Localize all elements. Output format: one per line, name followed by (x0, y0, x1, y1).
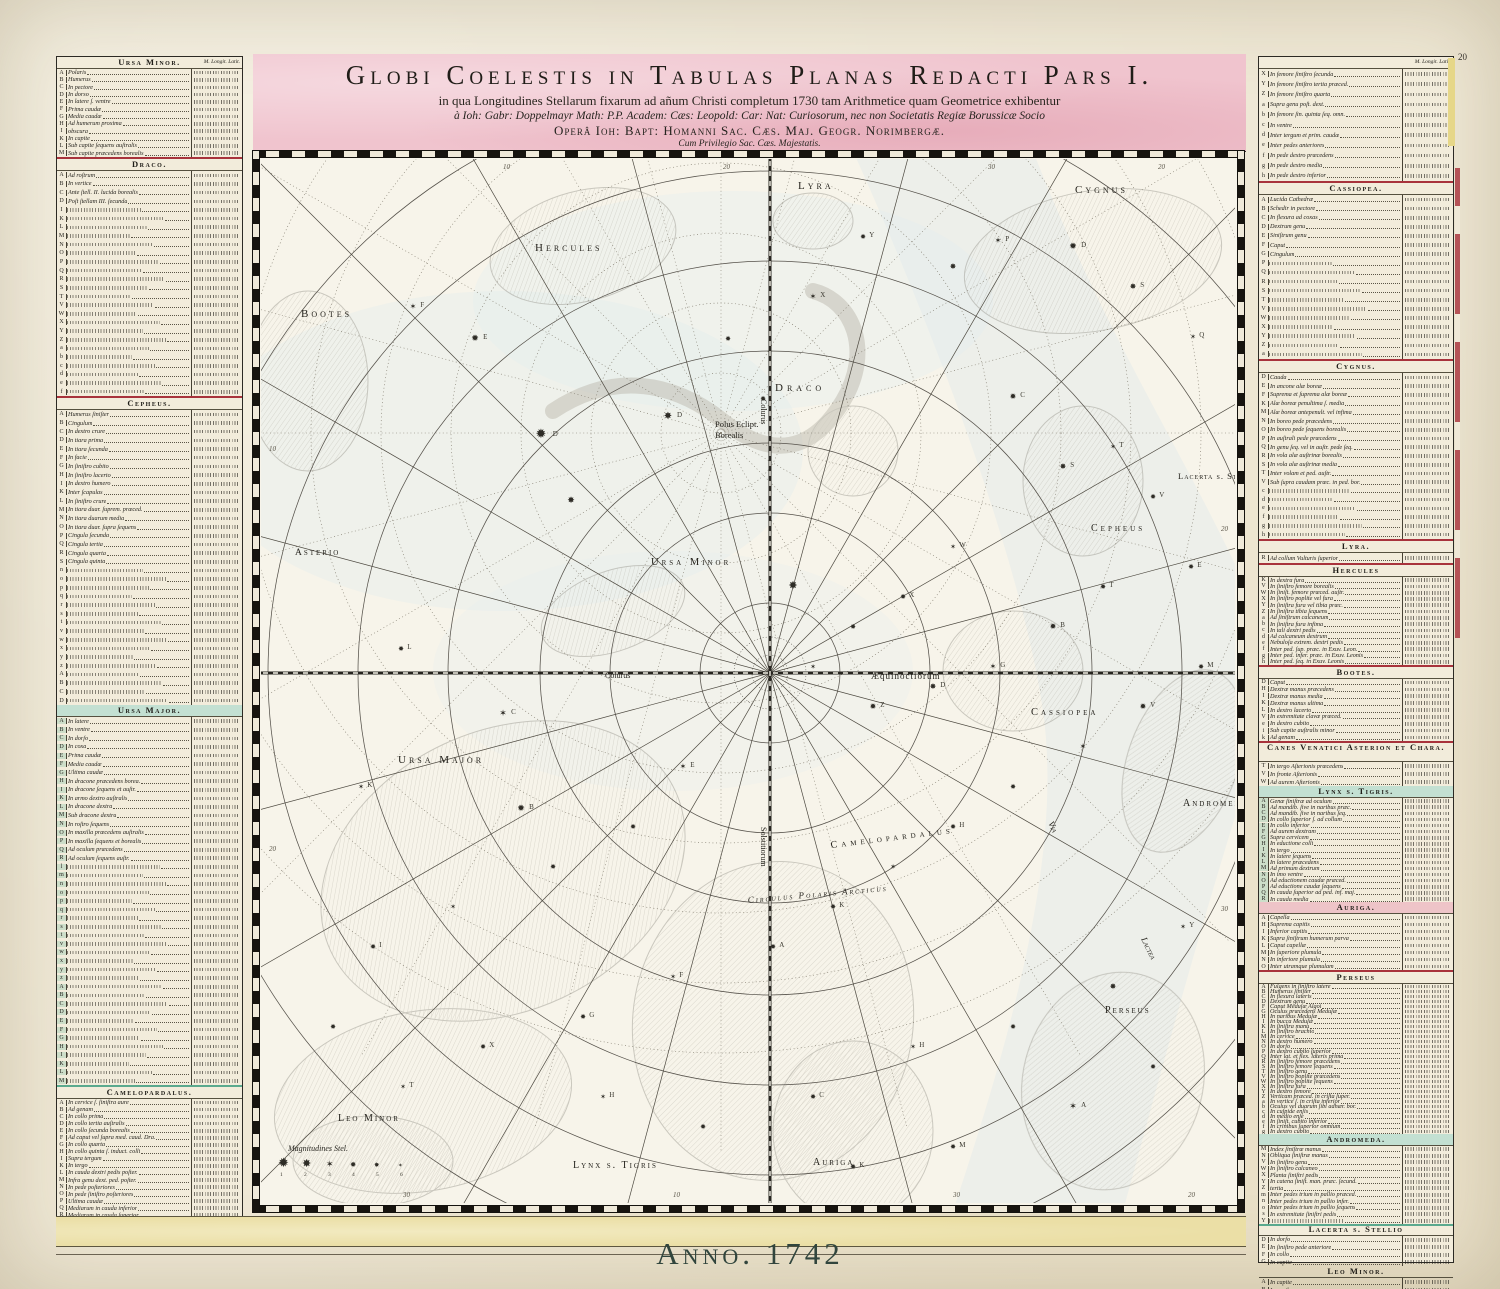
table-row: R (57, 275, 242, 284)
table-row: NIn pede poſteriores (57, 1184, 242, 1191)
table-row: z (57, 974, 242, 983)
table-row: MInfra genu dext. ped. poſter. (57, 1177, 242, 1184)
table-row: e (57, 379, 242, 388)
svg-text:10: 10 (673, 1191, 681, 1199)
table-section-cygnus: Cygnus.DCaudaEIn ancone alæ boreæFSuprem… (1259, 359, 1453, 539)
svg-text:30: 30 (987, 163, 996, 171)
table-section-bootes: Bootes.DCaputHDextræ manus præcedensIDex… (1259, 665, 1453, 741)
table-row: K (57, 1060, 242, 1069)
table-row: MSub dracone dextra (57, 811, 242, 820)
svg-text:✶: ✶ (1190, 333, 1196, 341)
table-row: HDextræ manus præcedens (1259, 686, 1453, 693)
page-title: Globi Coelestis in Tabulas Planas Redact… (253, 60, 1246, 91)
svg-text:✸: ✸ (950, 1143, 956, 1151)
svg-text:✸: ✸ (1130, 282, 1137, 291)
section-title: Draco. (57, 157, 242, 171)
svg-text:10: 10 (269, 445, 277, 453)
table-section-lyra: Lyra.RAd collum Vulturis ſuperior (1259, 539, 1453, 563)
table-row: L (57, 223, 242, 232)
svg-text:6: 6 (400, 1172, 403, 1178)
table-row: V (1259, 304, 1453, 313)
table-row: m (57, 871, 242, 880)
table-row: c (57, 361, 242, 370)
table-row: y (57, 965, 242, 974)
anno-date: Anno. 1742 (0, 1236, 1500, 1272)
table-row: DCauda (1259, 373, 1453, 382)
svg-text:5: 5 (376, 1172, 379, 1178)
svg-text:✸: ✸ (830, 903, 836, 911)
table-row: QMediarum in cauda inferior (57, 1205, 242, 1212)
star-table-left: Ursa Minor.M. Longit. Latit.APolarisBHum… (56, 56, 243, 1235)
section-title: Lynx ſ. Tigris. (1259, 786, 1453, 798)
svg-text:F: F (679, 971, 683, 979)
svg-text:30: 30 (402, 1191, 411, 1199)
svg-text:1: 1 (280, 1172, 283, 1178)
column-header-row: M. Longit. Latit. (1259, 57, 1453, 69)
svg-text:M: M (959, 1141, 966, 1149)
svg-text:20: 20 (1188, 1191, 1196, 1199)
table-row: BCingulum (57, 419, 242, 428)
table-row: OIn boreo pede ſequens borealis (1259, 425, 1453, 434)
table-row: GMedia caudæ (57, 113, 242, 120)
svg-text:✶: ✶ (358, 783, 364, 791)
table-row: s (57, 923, 242, 932)
svg-text:✹: ✹ (870, 702, 877, 711)
svg-text:L: L (407, 643, 411, 651)
section-title: Hercules (1259, 563, 1453, 577)
table-row: LIn cauda dextri pedis poſter. (57, 1169, 242, 1176)
table-row: T (1259, 295, 1453, 304)
table-row: DIn tiara prima (57, 436, 242, 445)
table-row: r (57, 914, 242, 923)
table-row: r (57, 601, 242, 610)
table-row: E (57, 1017, 242, 1026)
table-row: W (57, 310, 242, 319)
table-row: KSupra ſiniſtrum humerum parva (1259, 935, 1453, 942)
table-row: S (1259, 286, 1453, 295)
svg-text:✹: ✹ (536, 427, 547, 442)
table-row: CAnte ſtell. II. lucida borealis (57, 188, 242, 197)
table-row: IIn dracone ſequens et auſtr. (57, 786, 242, 795)
table-row: OIn maxilla præcedens auſtralis (57, 828, 242, 837)
svg-text:X: X (489, 1041, 494, 1049)
table-row: GIn ſiniſtro cubito (57, 462, 242, 471)
svg-text:✶: ✶ (890, 863, 896, 871)
table-row: QCingula tertia (57, 540, 242, 549)
svg-text:T: T (409, 1081, 414, 1089)
svg-text:✹: ✹ (1150, 493, 1156, 501)
svg-text:V: V (1150, 701, 1155, 709)
column-header: M. Longit. Latit. (1415, 57, 1451, 68)
svg-text:✶: ✶ (326, 1160, 334, 1170)
table-row: KIn capite (57, 135, 242, 142)
table-row: N (57, 240, 242, 249)
svg-text:✹: ✹ (1069, 242, 1077, 252)
table-row: FIn facie (57, 453, 242, 462)
svg-text:✶: ✶ (1080, 742, 1087, 751)
table-row: DIn collo tertia auſtralis (57, 1120, 242, 1127)
table-row: CIn collo prima (57, 1113, 242, 1120)
svg-text:✹: ✹ (630, 823, 636, 831)
table-row: h (1259, 530, 1453, 539)
table-row: o (57, 888, 242, 897)
table-row: t (57, 931, 242, 940)
table-row: HSuprema capitis (1259, 921, 1453, 928)
table-row: A (57, 982, 242, 991)
table-row: X (57, 318, 242, 327)
celestial-map: ✹D✸D✶F✹E✸✶C✹B✸L✶K✹✸✶X✹Y✸✶P✹D✸S✶Q✹C✸S✶T✹V… (252, 150, 1245, 1213)
svg-text:C: C (511, 708, 516, 716)
magnitude-legend-title: Magnitudines Stel. (287, 1144, 348, 1153)
table-row: hInter ped. ſeq. in Exuv. Leonis (1259, 659, 1453, 665)
table-section-cassiopea: Cassiopea.ALucida CathedræBSchedir in pe… (1259, 181, 1453, 359)
table-row: IDextræ manus media (1259, 693, 1453, 700)
edge-yellow-strip (1448, 58, 1455, 146)
table-row: AIn cervice ſ. ſiniſtra aure (57, 1099, 242, 1106)
svg-text:✸: ✸ (1198, 663, 1204, 671)
table-row: n (57, 880, 242, 889)
svg-text:✶: ✶ (950, 543, 956, 551)
svg-text:✸: ✸ (1188, 563, 1194, 571)
table-row: bIn femore ſin. quinta ſeq. omn. (1259, 110, 1453, 120)
table-row: HIn ſiniſtro lacerto (57, 471, 242, 480)
table-row: HIn collo quinta ſ. induct. colli (57, 1148, 242, 1155)
svg-text:D: D (553, 430, 558, 438)
table-row: x (57, 957, 242, 966)
table-row: NIn roſtro ſequens (57, 820, 242, 829)
svg-text:✶: ✶ (1110, 443, 1116, 451)
svg-text:20: 20 (1221, 525, 1229, 533)
svg-text:✸: ✸ (950, 262, 957, 271)
table-row: X (1259, 323, 1453, 332)
table-row: IIn dextro humero (57, 479, 242, 488)
map-label: Hercules (535, 242, 603, 254)
svg-text:✹: ✹ (471, 334, 479, 344)
svg-text:✸: ✸ (664, 411, 672, 422)
table-row: VIn fronte Aſterionis (1259, 770, 1453, 778)
table-row: n (57, 566, 242, 575)
column-header: M. Longit. Latit. (204, 57, 240, 68)
svg-text:✶: ✶ (910, 1043, 916, 1051)
svg-text:E: E (1197, 561, 1201, 569)
table-row: APolaris (57, 69, 242, 76)
table-row: t (57, 618, 242, 627)
svg-text:✸: ✸ (330, 1023, 336, 1031)
svg-text:E: E (483, 333, 487, 341)
map-label: Borealis (715, 430, 743, 440)
table-row: NIn inferiore plumula (1259, 956, 1453, 963)
svg-text:T: T (1119, 441, 1124, 449)
table-row: R (1259, 277, 1453, 286)
table-row: RAd oculum ſequens auſtr. (57, 854, 242, 863)
svg-text:✹: ✹ (370, 943, 376, 951)
map-label: Asterio (295, 548, 340, 558)
svg-text:D: D (677, 411, 682, 419)
table-row: FCaput (1259, 241, 1453, 250)
table-section-draco: Draco.AAd roſtrumBIn verticeCAnte ſtell.… (57, 157, 242, 396)
celestial-atlas-sheet: Globi Coelestis in Tabulas Planas Redact… (0, 0, 1500, 1289)
table-row: l (57, 863, 242, 872)
table-row: Q (1259, 268, 1453, 277)
table-row: PUltima caudæ (57, 1198, 242, 1205)
table-row: SIn vola alæ auſtrinæ media (1259, 460, 1453, 469)
svg-text:D: D (1081, 241, 1086, 249)
table-row: CIn pectore (57, 84, 242, 91)
svg-text:✸: ✸ (550, 863, 556, 871)
table-section-cepheus: Cepheus.AHumerus ſiniſterBCingulumCIn de… (57, 396, 242, 705)
table-row: B (57, 679, 242, 688)
table-row: f (57, 387, 242, 396)
table-row: e (1259, 504, 1453, 513)
table-row: GCingulum (1259, 250, 1453, 259)
svg-text:✶: ✶ (990, 662, 997, 671)
table-row: z (57, 661, 242, 670)
table-section-hercules: HerculesKIn dextra furaVIn ſiniſtro femo… (1259, 563, 1453, 665)
section-title: Camelopardalus. (57, 1085, 242, 1099)
table-row: g (1259, 521, 1453, 530)
map-label: Colurus (605, 671, 630, 680)
svg-text:20: 20 (1158, 163, 1166, 171)
table-row: a (57, 344, 242, 353)
table-row: BIn vertice (57, 180, 242, 189)
table-row: Z (1259, 341, 1453, 350)
map-label: Ursa Minor (651, 557, 731, 568)
svg-text:✹: ✹ (278, 1156, 289, 1171)
table-row: eInter pedes anteriores (1259, 140, 1453, 150)
table-row: OInter utramque plumulam (1259, 963, 1453, 970)
svg-text:B: B (529, 803, 534, 811)
svg-text:30: 30 (952, 1191, 961, 1199)
svg-text:✹: ✹ (1010, 392, 1017, 401)
svg-text:H: H (919, 1041, 924, 1049)
table-section-andromeda: Andromeda.MIndex ſiniſtræ manusNObliqua … (1259, 1134, 1453, 1224)
table-row: DDextrum genu (1259, 222, 1453, 231)
table-row: LIn dracone dextra (57, 803, 242, 812)
section-title: Ursa Minor.M. Longit. Latit. (57, 57, 242, 69)
svg-text:C: C (819, 1091, 824, 1099)
svg-text:A: A (1081, 1101, 1086, 1109)
svg-text:W: W (959, 541, 966, 549)
svg-text:G: G (589, 1011, 594, 1019)
table-row: T (57, 292, 242, 301)
svg-text:✸: ✸ (1100, 583, 1106, 591)
svg-text:K: K (859, 1161, 864, 1169)
frame-ticks-right (1237, 151, 1244, 1212)
map-label: Lynx ſ. Tigris (573, 1160, 658, 1171)
svg-text:E: E (690, 761, 694, 769)
map-label: Auriga (813, 1157, 854, 1168)
svg-text:Y: Y (869, 231, 874, 239)
privilege-line: Cum Privilegio Sac. Cæs. Majestatis. (253, 139, 1246, 149)
svg-text:✹: ✹ (700, 1123, 706, 1131)
table-row: D (57, 1008, 242, 1017)
map-label: Lyra (798, 180, 834, 192)
table-row: GIn collo quarta (57, 1141, 242, 1148)
table-row: IInferior capitis (1259, 928, 1453, 935)
edge-red-strip (1455, 168, 1460, 638)
svg-text:✸: ✸ (930, 682, 937, 691)
svg-text:✶: ✶ (1180, 923, 1186, 931)
table-row: kAd genam (1259, 734, 1453, 741)
table-row: x (57, 644, 242, 653)
table-row: BSchedir in pectore (1259, 204, 1453, 213)
table-row: FPrima caudæ (57, 106, 242, 113)
table-row: EIn ancone alæ boreæ (1259, 382, 1453, 391)
table-row: B (57, 991, 242, 1000)
table-row: Q (57, 266, 242, 275)
table-row: NIn tiara duarum media (57, 514, 242, 523)
table-row: p (57, 583, 242, 592)
table-row: FAd caput vel ſupra med. caud. Dra. (57, 1134, 242, 1141)
table-row: dInter tergum et prim. caudæ (1259, 130, 1453, 140)
table-row: Y (1259, 332, 1453, 341)
section-title: Cepheus. (57, 396, 242, 410)
table-section-canesvenaticiasterion: Canes Venatici Asterion et Chara.TIn ter… (1259, 741, 1453, 786)
table-row: q (57, 905, 242, 914)
section-title: Auriga. (1259, 902, 1453, 914)
svg-text:3: 3 (328, 1172, 331, 1178)
table-row: hIn pede dextro inferior (1259, 171, 1453, 181)
table-row: ESiniſtrum genu (1259, 231, 1453, 240)
map-label: Cygnus (1075, 184, 1128, 196)
table-row: iSub capite auſtralis minor (1259, 727, 1453, 734)
svg-text:✸: ✸ (580, 1013, 586, 1021)
svg-text:✸: ✸ (725, 335, 731, 343)
map-label: Æquinoctiorum (871, 671, 941, 681)
table-row: DIn coxa (57, 743, 242, 752)
table-row: S (57, 284, 242, 293)
table-row: O (57, 249, 242, 258)
table-row: ISupra tergum (57, 1155, 242, 1162)
svg-text:✹: ✹ (1050, 622, 1057, 631)
svg-text:✹: ✹ (1010, 1023, 1016, 1031)
svg-text:✹: ✹ (860, 233, 866, 241)
svg-text:✹: ✹ (1150, 1063, 1156, 1071)
table-row: EPrima caudæ (57, 751, 242, 760)
table-row: C (57, 688, 242, 697)
table-row: F (57, 1025, 242, 1034)
subtitle-line: in qua Longitudines Stellarum fixarum ad… (253, 93, 1246, 109)
frame-ticks-bottom (253, 1205, 1244, 1212)
svg-text:✸: ✸ (1110, 982, 1117, 991)
table-row: AAd roſtrum (57, 171, 242, 180)
table-row: LSub capite ſequens auſtralis (57, 142, 242, 149)
svg-text:✸: ✸ (398, 645, 404, 653)
table-row: eIn dextro cubito (1259, 720, 1453, 727)
section-title: Canes Venatici Asterion et Chara. (1259, 741, 1453, 762)
table-row: L (57, 1068, 242, 1077)
table-row: GUltima caudæ (57, 768, 242, 777)
table-row: a (1259, 350, 1453, 359)
svg-text:10: 10 (503, 163, 511, 171)
table-row: FMedia caudæ (57, 760, 242, 769)
svg-text:✹: ✹ (900, 593, 906, 601)
table-row: I (57, 1051, 242, 1060)
svg-text:A: A (779, 941, 784, 949)
table-row: P (1259, 259, 1453, 268)
svg-text:✶: ✶ (810, 292, 817, 301)
svg-text:✸: ✸ (302, 1157, 311, 1170)
map-label: Draco (775, 382, 825, 394)
table-row: AHumerus ſiniſter (57, 410, 242, 419)
table-row: EIn tiara ſecunda (57, 445, 242, 454)
svg-text:✶: ✶ (398, 1162, 403, 1169)
table-row: DIn dorso (57, 91, 242, 98)
table-row: SCingula quinta (57, 557, 242, 566)
table-row: QAd oculum præcedens (57, 845, 242, 854)
table-section-ursamajor: Ursa Major.AIn latereBIn ventreCIn dorſo… (57, 705, 242, 1085)
table-row: cIn ventre (1259, 120, 1453, 130)
celestial-map-canvas: ✹D✸D✶F✹E✸✶C✹B✸L✶K✹✸✶X✹Y✸✶P✹D✸S✶Q✹C✸S✶T✹V… (253, 151, 1243, 1211)
table-row: Z (57, 335, 242, 344)
table-row: fIn pede dextro præcedens (1259, 151, 1453, 161)
svg-text:H: H (959, 821, 964, 829)
section-title: Bootes. (1259, 665, 1453, 679)
table-row: s (57, 609, 242, 618)
map-label: Polus Eclipt. (715, 419, 758, 429)
map-label: Colurus (759, 399, 768, 424)
table-row: p (57, 897, 242, 906)
table-row: DCaput (1259, 679, 1453, 686)
map-label: Cassiopea (1031, 707, 1098, 718)
table-row: TInter volam et ped. auſtr. (1259, 469, 1453, 478)
table-row: BHumerus (57, 76, 242, 83)
svg-text:✶: ✶ (995, 236, 1002, 245)
table-row: KIn tergo (57, 1162, 242, 1169)
svg-text:✸: ✸ (567, 496, 575, 506)
table-row: KIn armo dextro auſtralis (57, 794, 242, 803)
svg-text:X: X (820, 291, 825, 299)
table-row: LIn dextro lacerto (1259, 707, 1453, 714)
table-row: AIn latere (57, 717, 242, 726)
frame-ticks-top (253, 151, 1244, 158)
table-row: EIn collo ſecunda borealis (57, 1127, 242, 1134)
svg-text:4: 4 (352, 1172, 355, 1178)
table-row: P (57, 258, 242, 267)
table-row: o (57, 575, 242, 584)
table-row: v (57, 940, 242, 949)
table-section-perseus: PerseusAFulgens in ſiniſtro latereBHumer… (1259, 970, 1453, 1134)
svg-text:D: D (940, 681, 945, 689)
svg-text:✶: ✶ (600, 1093, 606, 1101)
map-label: Solstitiorum (759, 827, 768, 867)
table-row: NIn boreo pede præcedens (1259, 417, 1453, 426)
table-row: HAd humerum proxima (57, 120, 242, 127)
table-row: KInter ſcapulas (57, 488, 242, 497)
table-row: CIn dorſo (57, 734, 242, 743)
svg-text:✸: ✸ (850, 623, 856, 631)
table-row: VIn extremitate clavæ præced. (1259, 713, 1453, 720)
table-row: CIn dextro crure (57, 427, 242, 436)
table-row: PIn auſtrali pede præcedens (1259, 434, 1453, 443)
map-label: Bootes (301, 308, 352, 320)
table-row: Iobscura (57, 128, 242, 135)
table-row: LCaput capellæ (1259, 942, 1453, 949)
table-section-ursaminor: Ursa Minor.M. Longit. Latit.APolarisBHum… (57, 57, 242, 157)
table-row: BIn ventre (57, 726, 242, 735)
table-row: M (57, 232, 242, 241)
svg-text:✹: ✹ (350, 1160, 356, 1169)
svg-text:✹: ✹ (1140, 702, 1147, 711)
map-label: Lacerta ſ. Stellio (1178, 471, 1243, 481)
svg-text:✶: ✶ (400, 1083, 406, 1091)
svg-text:G: G (1000, 661, 1005, 669)
svg-text:20: 20 (269, 845, 277, 853)
table-row: V (57, 301, 242, 310)
table-row: MAlæ boreæ antepenult. vel infima (1259, 408, 1453, 417)
section-title: Lyra. (1259, 539, 1453, 553)
svg-text:✸: ✸ (1060, 462, 1067, 471)
